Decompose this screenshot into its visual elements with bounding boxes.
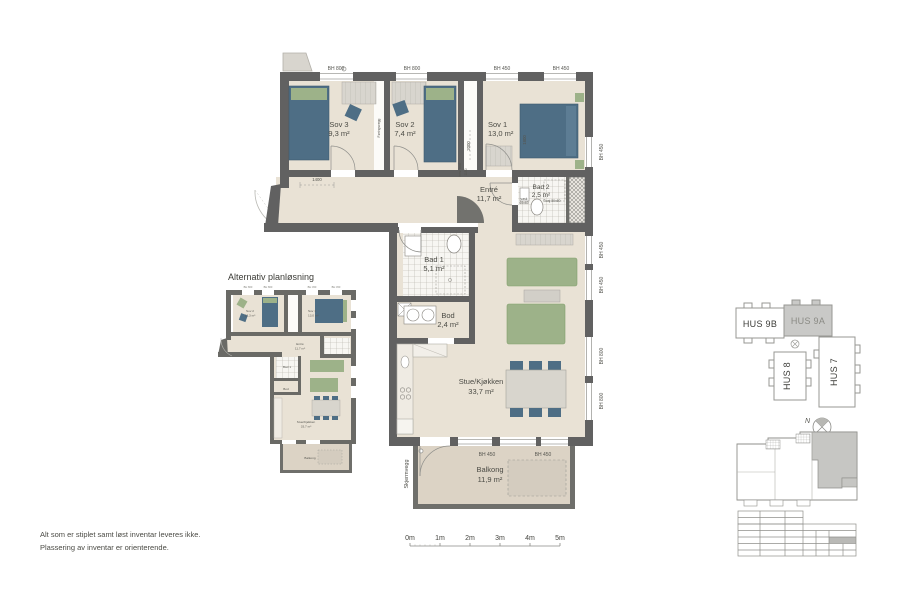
alt-dim-2: BH 800 [264, 285, 273, 289]
room-area-bad1: 5,1 m² [423, 264, 445, 273]
wardrobe [392, 82, 426, 104]
dim-1800: 1800 [522, 135, 527, 145]
alt-dim-3: BH 450 [308, 285, 317, 289]
dim-2000: 2000 [466, 141, 471, 151]
dim-right-2: BH 450 [599, 241, 605, 258]
alt-label-bad1: Bad 1 [283, 365, 291, 369]
room-area-sov3: 9,3 m² [328, 129, 350, 138]
toilet [447, 235, 461, 253]
alt-area-entre: 11,7 m² [295, 347, 305, 351]
label-dusj: Dusj 80x80 [544, 199, 561, 203]
alt-plan-title: Alternativ planløsning [228, 272, 314, 282]
sink [405, 236, 421, 256]
north-label: N [805, 418, 811, 425]
room-area-bad2: 2,5 m² [532, 192, 551, 199]
alt-label-balkong: Balkong [304, 456, 315, 460]
dim-balcony-1: BH 450 [479, 452, 496, 458]
footnotes: Alt som er stiplet samt løst inventar le… [40, 530, 200, 552]
alt-dim-1: BH 800 [244, 285, 253, 289]
coffee-table [524, 290, 560, 302]
room-label-sov3: Sov 3 [329, 120, 348, 129]
alt-area-sov2: 12,3 m² [245, 314, 256, 318]
room-label-sov2: Sov 2 [395, 120, 414, 129]
balcony-furniture [508, 460, 566, 496]
dim-top-2: BH 800 [404, 66, 421, 72]
dim-top-3: BH 450 [494, 66, 511, 72]
dim-right-1: BH 450 [599, 143, 605, 160]
toilet [531, 199, 543, 215]
scale-2m: 2m [465, 535, 475, 542]
label-hus9a: HUS 9A [791, 316, 825, 326]
room-label-stue: Stue/Kjøkken [459, 377, 504, 386]
room-label-entre: Entré [480, 185, 498, 194]
alt-label-sov2: Sov 2 [246, 309, 254, 313]
dim-right-5: BH 800 [599, 392, 605, 409]
footnote-line1: Alt som er stiplet samt løst inventar le… [40, 530, 200, 539]
dining-group [506, 361, 566, 417]
dim-balcony-2: BH 450 [535, 452, 552, 458]
label-hus7: HUS 7 [829, 358, 839, 386]
footnote-line2: Plassering av inventar er orienterende. [40, 543, 169, 552]
nightstand [575, 93, 584, 102]
fridge [397, 419, 413, 434]
kitchen-sink [401, 356, 409, 368]
room-label-bad1: Bad 1 [424, 255, 444, 264]
room-label-bad2: Bad 2 [533, 184, 550, 191]
alt-label-bod: Bod [283, 387, 289, 391]
label-skjermvegg: Skjermvegg [404, 459, 410, 488]
bed-sov1 [520, 93, 584, 169]
room-area-entre: 11,7 m² [477, 194, 502, 203]
alt-plan: Alternativ planløsning [218, 272, 356, 473]
alt-area-sov1: 13,0 m² [308, 314, 319, 318]
room-area-sov1: 13,0 m² [488, 129, 514, 138]
alt-label-stue: Stue/Kjøkken [297, 420, 316, 424]
room-label-sov1: Sov 1 [488, 120, 507, 129]
room-area-bod: 2,4 m² [437, 320, 459, 329]
label-hus9b: HUS 9B [743, 319, 777, 329]
room-area-balkong: 11,9 m² [478, 475, 503, 484]
alt-area-stue: 33,7 m² [301, 425, 312, 429]
room-label-balkong: Balkong [476, 465, 503, 474]
alt-label-entre: Entré [296, 342, 304, 346]
room-label-bod: Bod [441, 311, 454, 320]
label-innv-bod: innv. bod [458, 163, 462, 177]
dim-right-3: BH 450 [599, 276, 605, 293]
scale-3m: 3m [495, 535, 505, 542]
label-hus8: HUS 8 [782, 362, 792, 390]
bed-sov2 [424, 86, 456, 162]
dim-1400: 1400 [312, 177, 322, 182]
alt-label-sov1: Sov 1 [308, 309, 316, 313]
scale-0m: 0m [405, 535, 415, 542]
dim-right-4: BH 800 [599, 347, 605, 364]
room-area-sov2: 7,4 m² [394, 129, 416, 138]
dining-table [506, 370, 566, 408]
bed-sov3 [289, 86, 329, 160]
scale-5m: 5m [555, 535, 565, 542]
label-vask-size: 60x60 [519, 201, 528, 205]
wardrobe [342, 82, 376, 104]
floor-plate-key [737, 432, 857, 506]
key-plan: HUS 9B HUS 9A HUS 8 HUS 7 N [736, 300, 860, 556]
alt-dim-4: BH 450 [332, 285, 341, 289]
dim-1150: 1150 [464, 168, 468, 175]
wardrobe [516, 234, 573, 245]
scale-4m: 4m [525, 535, 535, 542]
highlighted-level [829, 537, 856, 543]
floorplan-sheet: Sov 3 9,3 m² Sov 2 7,4 m² Sov 1 13,0 m² … [0, 0, 900, 600]
nightstand [575, 160, 584, 169]
section-key [738, 511, 856, 556]
scale-1m: 1m [435, 535, 445, 542]
laundry [398, 303, 436, 324]
floorplan-drawing: Sov 3 9,3 m² Sov 2 7,4 m² Sov 1 13,0 m² … [0, 0, 900, 600]
label-foringsvegg: Føringsvegg [377, 118, 381, 137]
dim-top-1: BH 800 [328, 66, 345, 72]
dim-top-4: BH 450 [553, 66, 570, 72]
column-marker [419, 449, 423, 453]
room-area-stue: 33,7 m² [468, 387, 494, 396]
scale-bar: 0m 1m 2m 3m 4m 5m [405, 535, 565, 546]
